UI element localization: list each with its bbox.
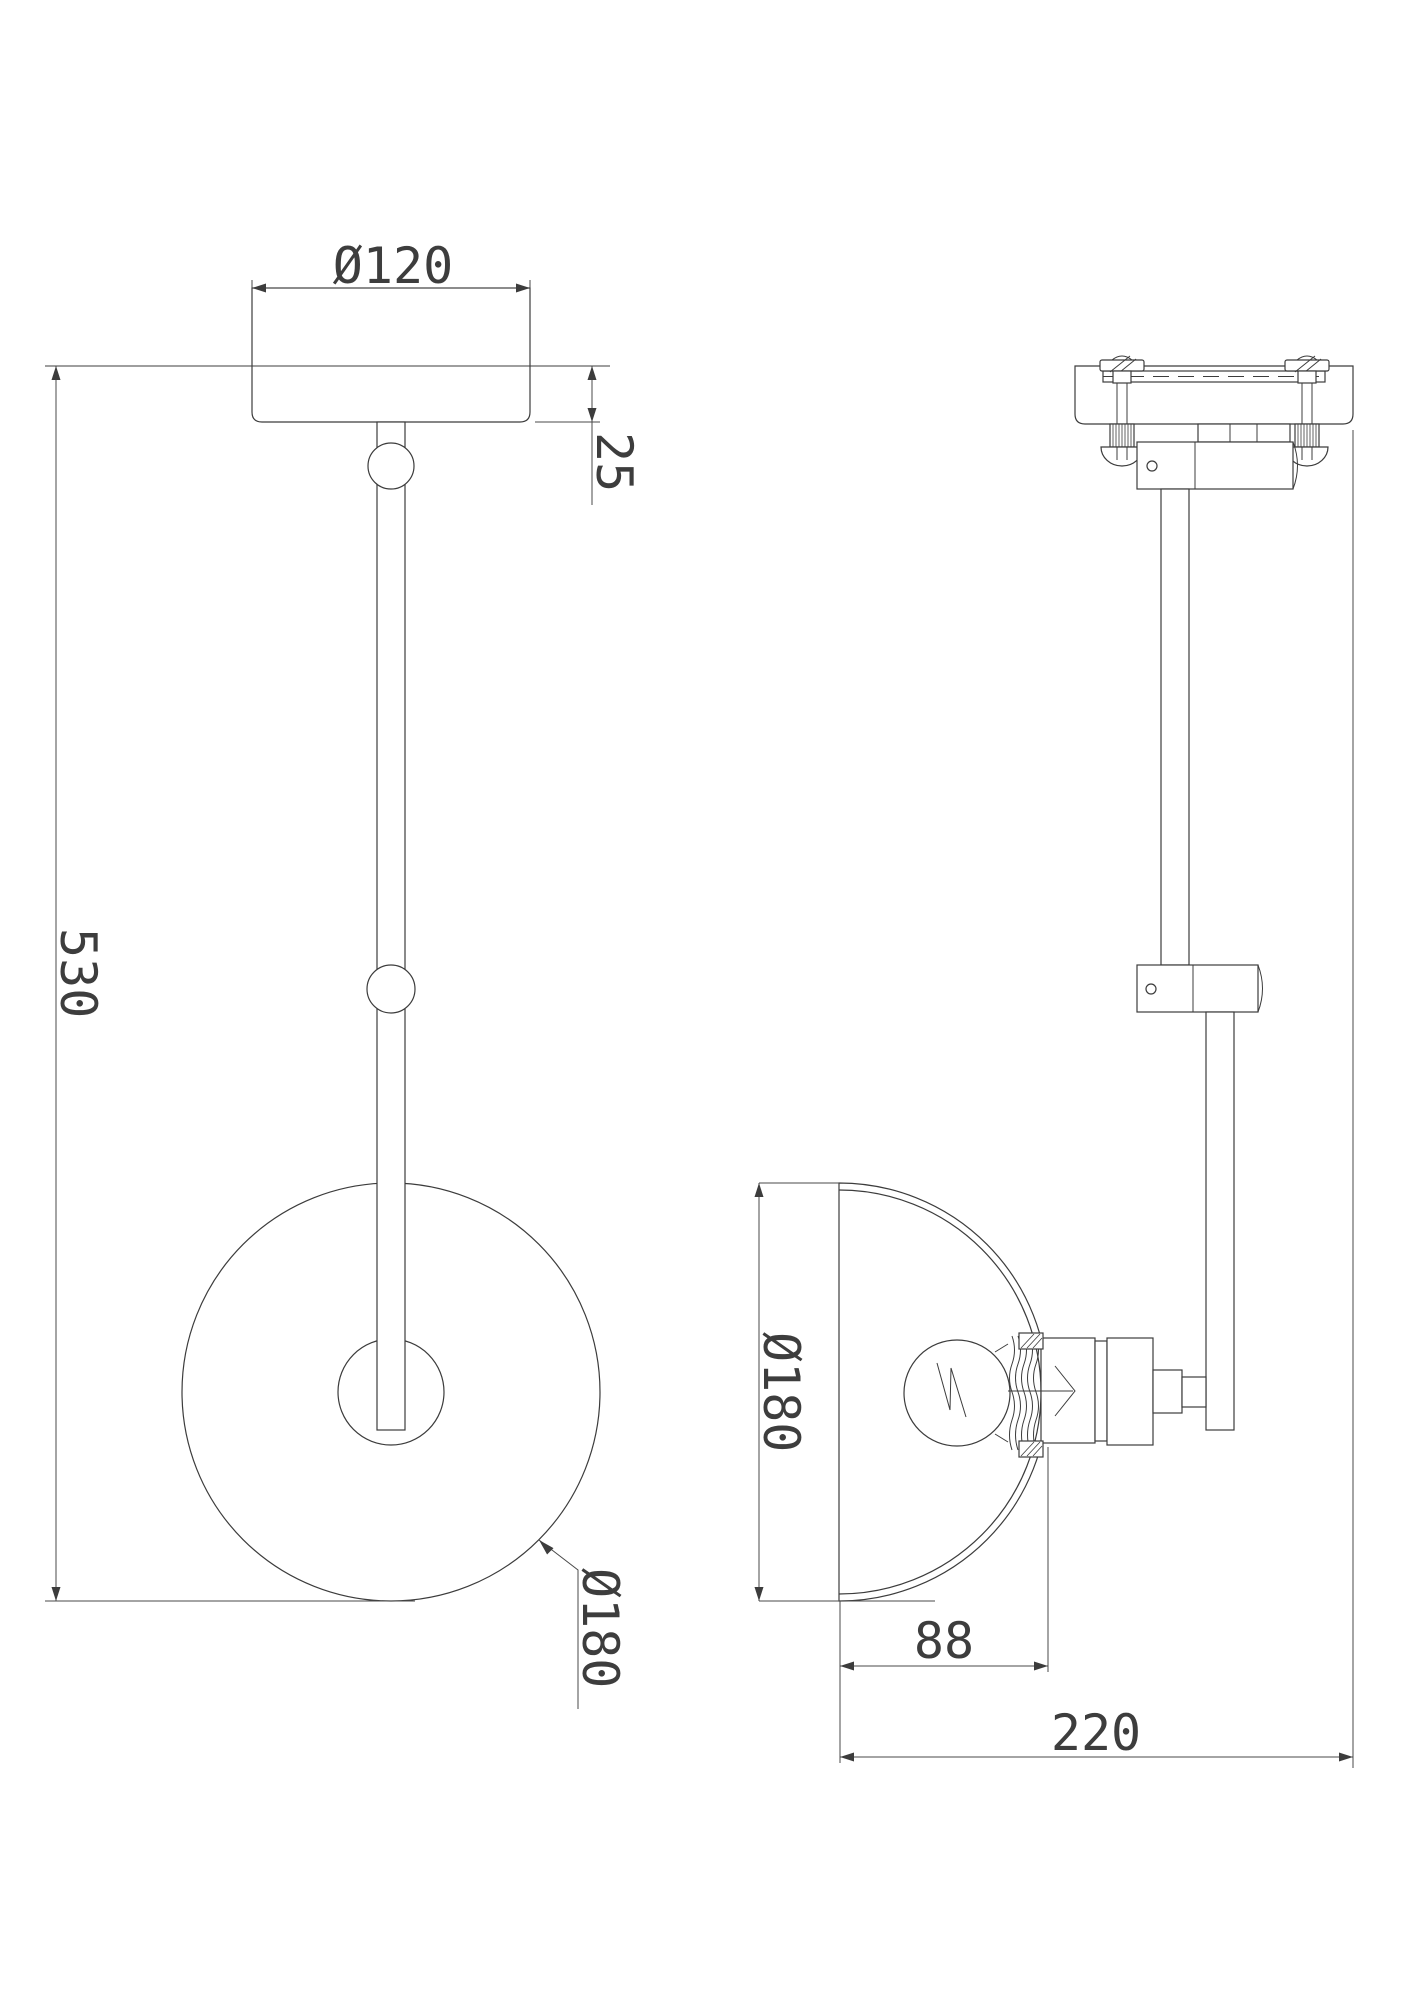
arm-side-lower	[1206, 1012, 1234, 1430]
dim-label-overall-height: 530	[49, 928, 107, 1018]
shade-side	[839, 1183, 1048, 1601]
dim-label-overall-projection: 220	[1051, 1704, 1141, 1762]
canopy-plate-front	[252, 288, 530, 422]
dim-canopy-depth: 25	[535, 366, 643, 505]
stem-front	[377, 422, 405, 1430]
side-view	[839, 356, 1353, 1601]
swivel-bracket-upper	[1137, 442, 1298, 489]
dim-label-canopy-depth: 25	[585, 432, 643, 492]
socket-stub	[1153, 1370, 1182, 1413]
dim-label-shade-depth: 88	[914, 1612, 974, 1670]
swivel-bracket-lower	[1137, 965, 1263, 1012]
dim-label-shade-diameter-side: Ø180	[752, 1332, 810, 1452]
lamp-dimension-drawing: Ø120 25 530 Ø180	[0, 0, 1413, 2000]
dim-shade-diameter-front: Ø180	[539, 1540, 629, 1709]
socket-cap	[1107, 1338, 1153, 1445]
ball-joint-lower	[367, 965, 415, 1013]
socket-ring	[1095, 1341, 1107, 1441]
front-view	[45, 288, 610, 1601]
dim-label-canopy-diameter: Ø120	[333, 237, 453, 295]
stem-side-upper	[1161, 489, 1189, 965]
arm-connector	[1182, 1377, 1206, 1407]
dim-label-shade-diameter-front: Ø180	[571, 1568, 629, 1688]
ball-joint-upper	[368, 443, 414, 489]
technical-drawing-page: Ø120 25 530 Ø180	[0, 0, 1413, 2000]
canopy-collar	[1198, 424, 1290, 442]
dim-canopy-diameter: Ø120	[252, 237, 530, 295]
